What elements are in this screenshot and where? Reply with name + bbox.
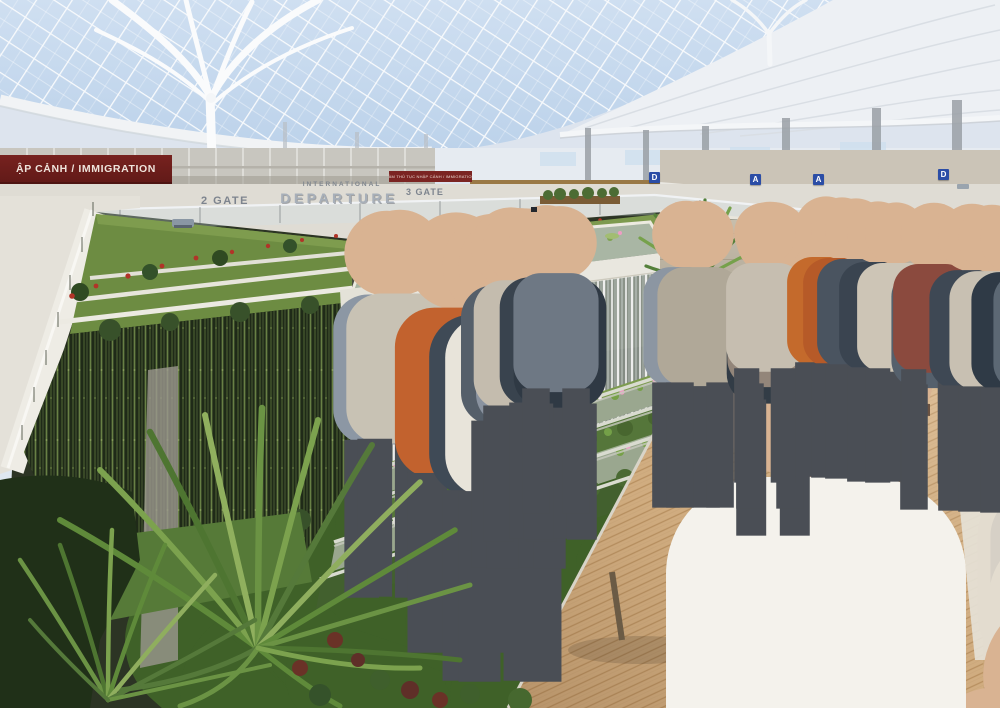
immigration-banner-label: ẬP CẢNH / IMMIGRATION — [16, 163, 156, 175]
departure-sign: DEPARTURE — [278, 190, 400, 206]
checkin-row-sign-d2: D — [938, 169, 949, 180]
checkin-row-sign-a2: A — [813, 174, 824, 185]
atrium-rendering: ẬP CẢNH / IMMIGRATION LÀM THỦ TỤC NHẬP C… — [0, 0, 1000, 708]
checkin-row-sign-a1: A — [750, 174, 761, 185]
gate-2-sign: 2 GATE — [201, 195, 249, 207]
immigration-small-sign-label: LÀM THỦ TỤC NHẬP CẢNH / IMMIGRATION — [389, 174, 472, 179]
checkin-row-sign-d1: D — [649, 172, 660, 183]
international-sign: INTERNATIONAL — [300, 181, 384, 188]
immigration-small-sign: LÀM THỦ TỤC NHẬP CẢNH / IMMIGRATION — [389, 171, 472, 182]
luggage-trolley — [172, 219, 194, 228]
scene-canvas — [0, 0, 1000, 708]
gate-3-sign: 3 GATE — [406, 187, 444, 197]
immigration-banner: ẬP CẢNH / IMMIGRATION — [0, 155, 172, 184]
